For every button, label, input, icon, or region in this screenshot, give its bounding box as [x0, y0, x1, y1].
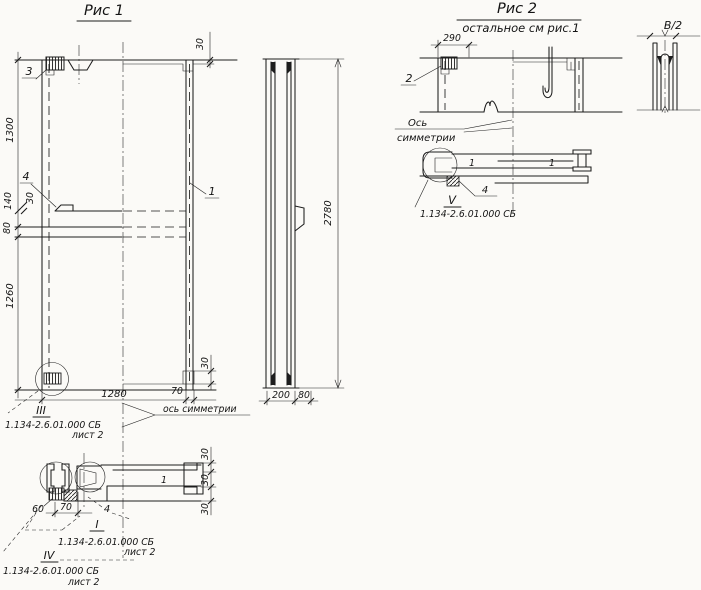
technical-drawing: Рис 1 1300 140 30 80 1260	[0, 0, 701, 590]
callout-IV-sheet: лист 2	[67, 577, 99, 588]
callout-I-mark: I	[95, 518, 98, 531]
dim-30-corner: 30	[200, 357, 211, 369]
detail-b2-view: В/2	[637, 19, 700, 114]
dim-30-notch: 30	[25, 192, 36, 204]
callout-III-sheet: лист 2	[71, 430, 103, 441]
dim-1260: 1260	[5, 283, 16, 308]
dim-290: 290	[443, 33, 461, 44]
dim-60: 60	[32, 504, 44, 515]
dim-80: 80	[2, 222, 13, 234]
callout-V-ref: 1.134-2.6.01.000 СБ	[420, 209, 516, 220]
anchor-plate-hatch	[46, 57, 64, 70]
side-bracket	[295, 206, 304, 231]
fig2-axis-line1: Ось	[408, 118, 427, 129]
fig1-bottom-section: 1 60 70 4 30 30 30 I 1.134-2.6.01.000 СБ…	[3, 447, 216, 588]
fig2-view: Рис 2 остальное см рис.1 2 290 Ось симме…	[395, 1, 622, 220]
anchor-loop	[543, 47, 552, 98]
section-mark-1a: 1	[469, 158, 475, 169]
fig1-title: Рис 1	[84, 3, 124, 19]
callout-III-mark: III	[36, 404, 46, 417]
axis-symmetry-label: ось симметрии	[163, 404, 237, 415]
part-label-2: 2	[406, 72, 413, 85]
dim-30-c: 30	[200, 503, 211, 515]
dim-b2: В/2	[664, 19, 682, 32]
fig2-subtitle: остальное см рис.1	[462, 21, 579, 35]
dim-30-top: 30	[195, 38, 206, 50]
callout-IV-mark: IV	[44, 549, 56, 562]
part-label-4-section: 4	[104, 504, 110, 515]
dim-30-a: 30	[200, 448, 211, 460]
dim-2780: 2780	[323, 200, 334, 225]
dim-80-side: 80	[298, 390, 310, 401]
section-mark-1b: 1	[549, 158, 555, 169]
part-label-4: 4	[23, 170, 30, 183]
part-label-4-fig2: 4	[482, 185, 488, 196]
callout-I-sheet: лист 2	[123, 547, 155, 558]
part-label-1: 1	[209, 185, 216, 198]
dim-1300: 1300	[5, 117, 16, 142]
dim-200: 200	[272, 390, 290, 401]
fig1-front-view: Рис 1 1300 140 30 80 1260	[2, 3, 250, 558]
dim-1280: 1280	[101, 389, 126, 400]
blueprint-sheet: Рис 1 1300 140 30 80 1260	[0, 0, 701, 590]
dim-140: 140	[3, 192, 14, 210]
side-view: 2780 200 80	[259, 59, 344, 405]
dim-30-b: 30	[200, 474, 211, 486]
dim-70: 70	[171, 386, 183, 397]
callout-V-mark: V	[448, 193, 457, 207]
fig2-title: Рис 2	[497, 1, 537, 17]
part-label-3: 3	[26, 65, 33, 78]
fig2-axis-line2: симметрии	[397, 133, 456, 144]
callout-IV-ref: 1.134-2.6.01.000 СБ	[3, 566, 99, 577]
section-mark-1: 1	[161, 475, 167, 486]
dim-70-section: 70	[60, 502, 72, 513]
